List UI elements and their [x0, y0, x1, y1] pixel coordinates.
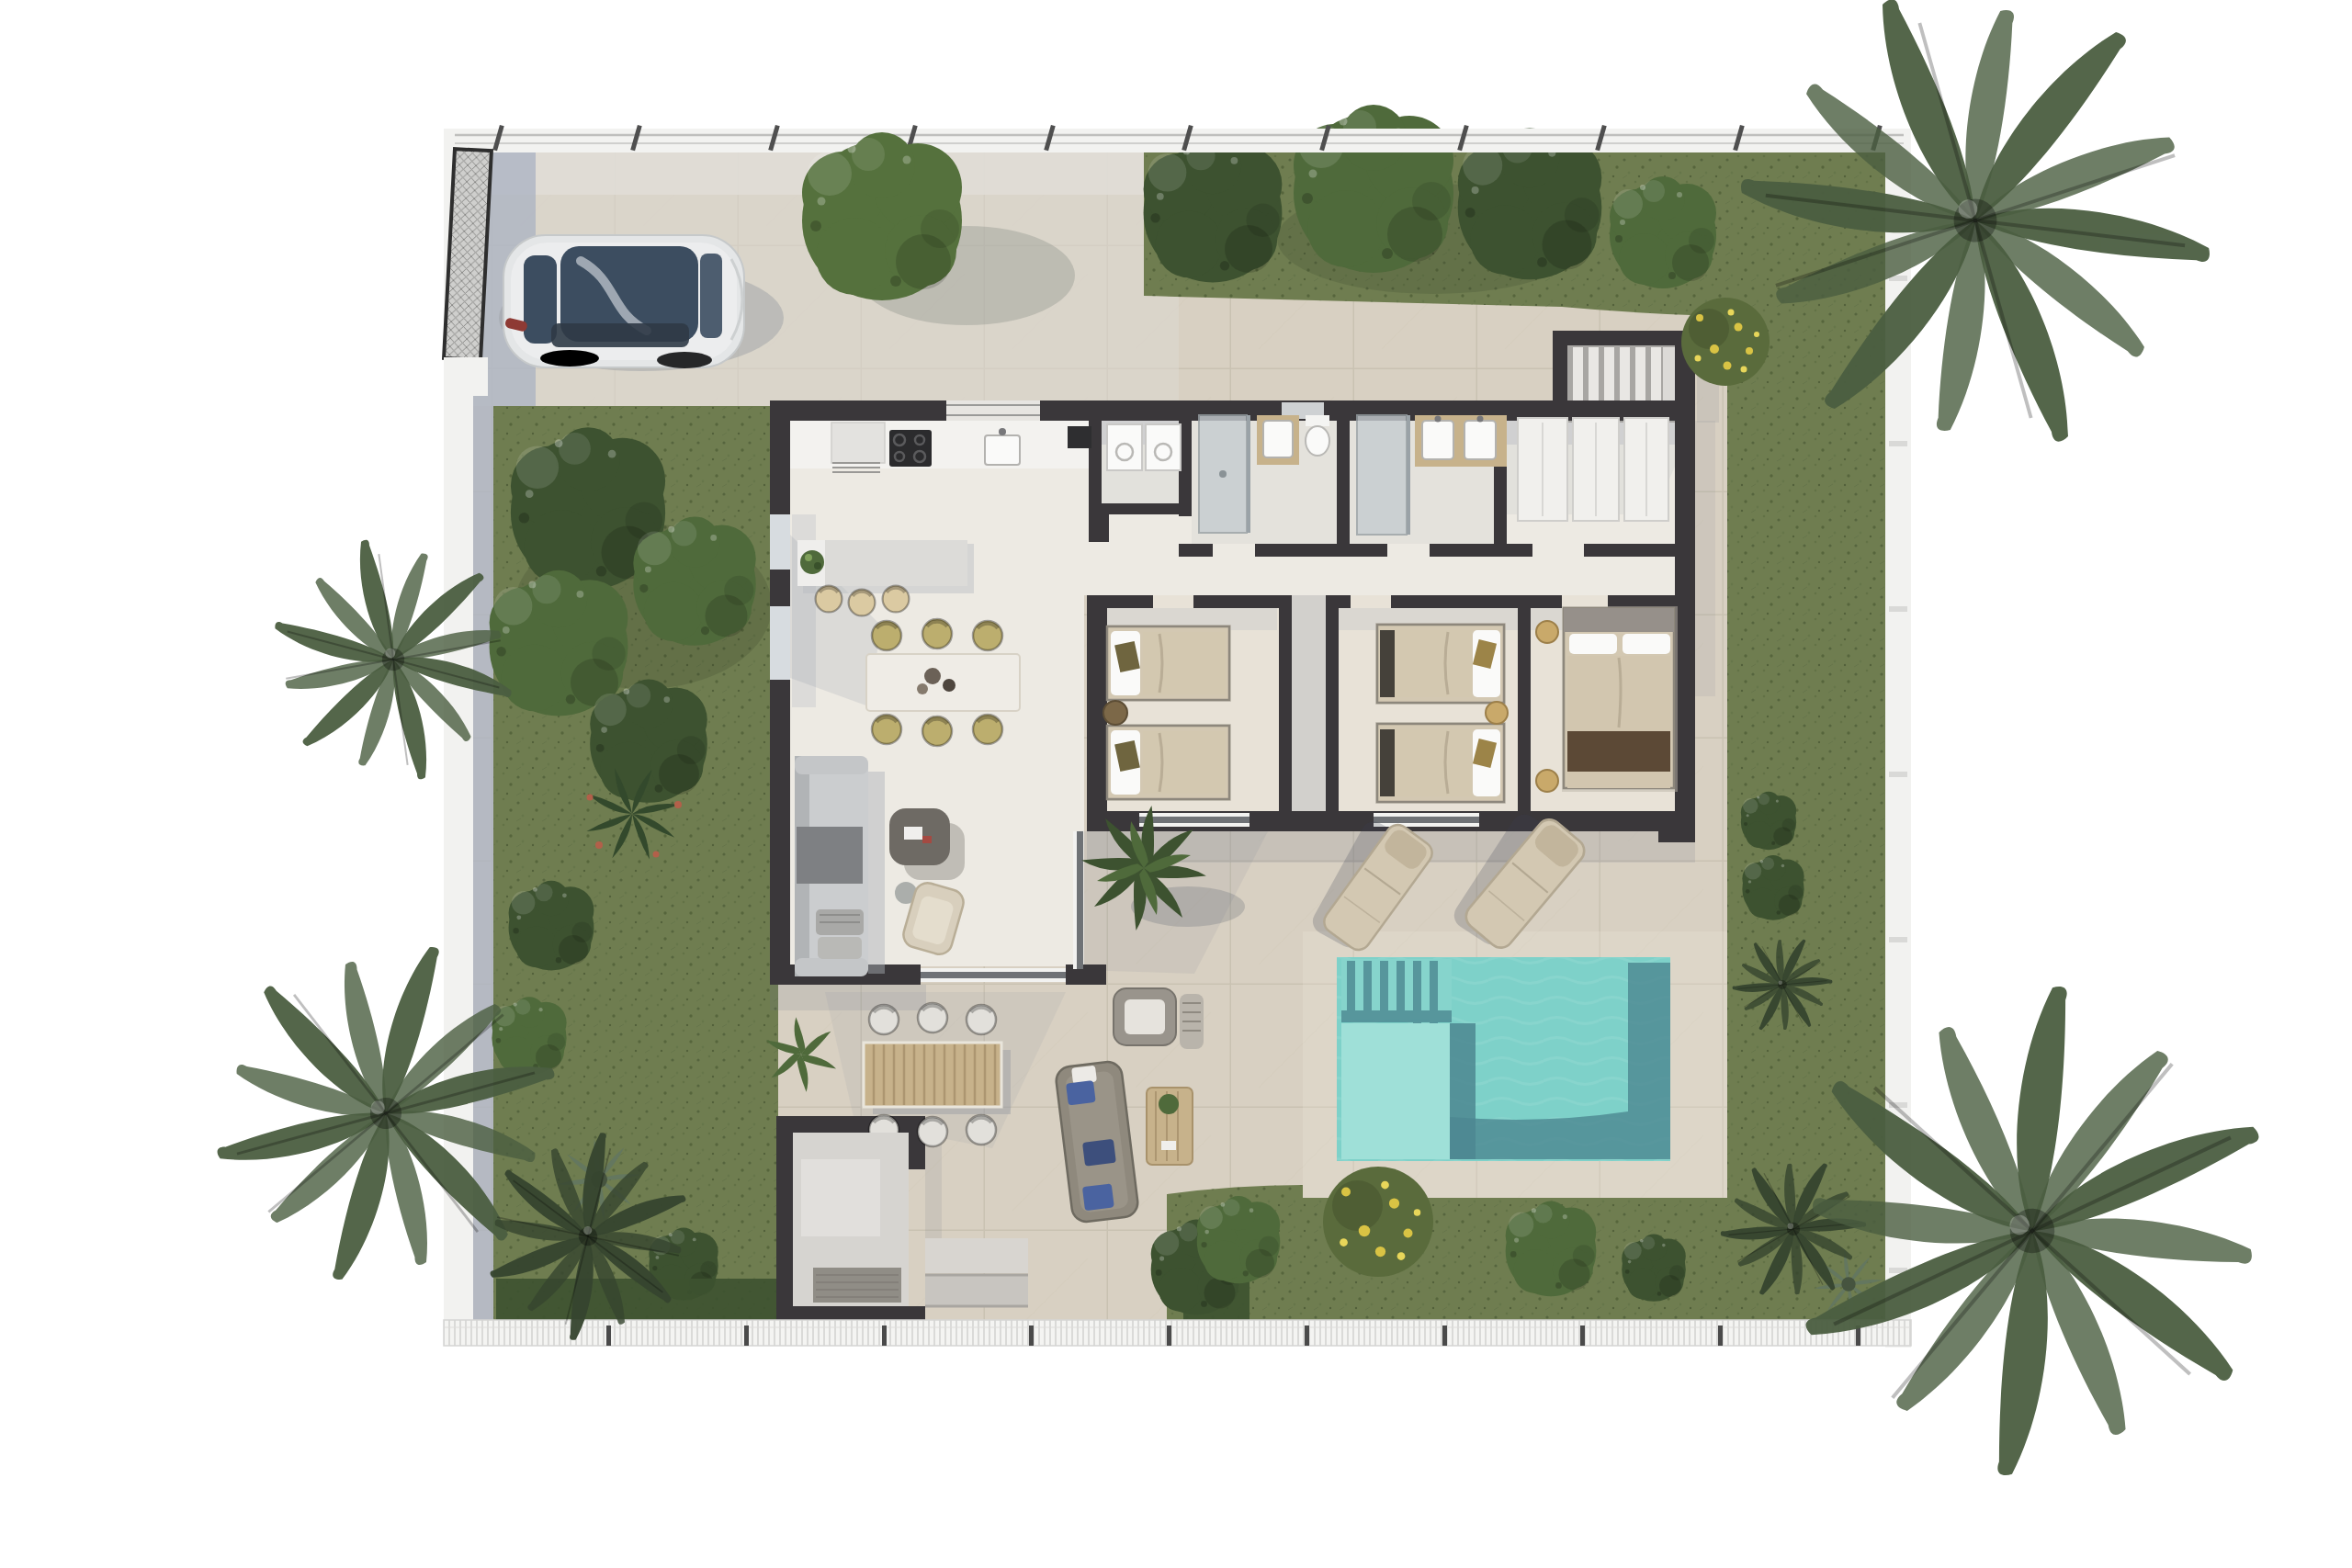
pool-shallow-platform: [1341, 1023, 1450, 1159]
bush: [492, 997, 566, 1075]
blue-pillow-1: [1066, 1080, 1096, 1105]
blue-pillow-2: [1082, 1183, 1114, 1211]
boundary-wall-top: [444, 129, 1911, 152]
bush: [509, 881, 594, 971]
bathroom-2-door: [1387, 544, 1430, 557]
outdoor-armchair: [1114, 988, 1176, 1045]
bush: [1197, 1196, 1280, 1283]
washer: [1107, 424, 1142, 470]
bar-stools: [816, 586, 910, 616]
toilet-1: [1306, 415, 1329, 426]
floor-plan-render: Photorealistic top-down render of a sing…: [0, 0, 2352, 1568]
dining-table: [866, 654, 1020, 711]
master-nightstand-a: [1536, 621, 1558, 643]
outdoor-coffee-table: [1147, 1088, 1193, 1165]
west-window-2: [770, 606, 790, 680]
boundary-fence-bottom: [444, 1320, 1911, 1346]
windshield: [700, 254, 722, 338]
twin-bed-2a: [1375, 623, 1506, 705]
dryer: [1146, 424, 1181, 470]
table-plant: [1159, 1094, 1179, 1114]
driveway-tree: [802, 132, 962, 300]
bed-runner: [1567, 731, 1670, 772]
outdoor-dining-table: [864, 1043, 1011, 1114]
bathroom-1: [1192, 415, 1337, 544]
twin-bed-2b: [1375, 722, 1506, 804]
dining-area: [866, 619, 1020, 746]
sink-2a: [1422, 421, 1453, 459]
bush: [1506, 1201, 1597, 1297]
sofa-throw: [797, 827, 863, 884]
sofa: [795, 756, 885, 976]
double-bed: [1562, 606, 1678, 792]
garden-tree: [1144, 137, 1283, 283]
twin-bed-1b: [1107, 724, 1231, 801]
glass-slider-bedroom-2: [1374, 813, 1479, 827]
glass-corner-living: [1073, 831, 1083, 969]
shower-2: [1357, 415, 1407, 535]
bedroom-2-door: [1351, 595, 1391, 608]
yellow-flower-bush: [1681, 298, 1770, 386]
pool-area: [1303, 931, 1727, 1198]
island-plant: [800, 550, 824, 574]
table-tray: [1161, 1141, 1176, 1150]
bush: [1741, 792, 1796, 850]
bush: [1622, 1235, 1686, 1302]
inner-corridor-door: [1292, 595, 1326, 608]
sofa-pillow-2: [818, 937, 862, 959]
side-windows: [551, 323, 689, 347]
covered-porch: [864, 1003, 1011, 1146]
nightstand-1: [1103, 701, 1127, 725]
sink-2b: [1464, 421, 1496, 459]
garden-tree: [1610, 176, 1716, 288]
kitchen-window: [946, 400, 1040, 421]
bathroom-2: [1350, 415, 1507, 544]
sink-1: [1263, 421, 1293, 457]
nightstand-2: [1486, 702, 1508, 724]
faucet: [999, 428, 1006, 435]
yellow-flower-bush: [1323, 1167, 1433, 1277]
coffee-machine: [1068, 426, 1091, 448]
bedroom-1-door: [1153, 595, 1193, 608]
bathroom-1-door: [1213, 544, 1255, 557]
dressing-door: [1532, 544, 1584, 557]
villa-floor-plan-svg: [0, 0, 2352, 1568]
kitchen-cabinet: [831, 423, 885, 463]
master-door: [1562, 595, 1608, 608]
kitchen-sink: [985, 435, 1020, 465]
dressing-corridor: [1518, 418, 1668, 521]
glass-slider-living: [921, 968, 1066, 982]
garden-tree: [590, 680, 707, 803]
entry-steps: [925, 1238, 1028, 1306]
twin-bed-1a: [1107, 625, 1231, 702]
glass-slider-bedroom-1: [1139, 813, 1249, 827]
navy-throw: [1082, 1139, 1116, 1167]
bush: [1742, 855, 1804, 920]
garden-tree: [633, 516, 755, 645]
master-nightstand-b: [1536, 770, 1558, 792]
west-window-1: [770, 514, 790, 570]
